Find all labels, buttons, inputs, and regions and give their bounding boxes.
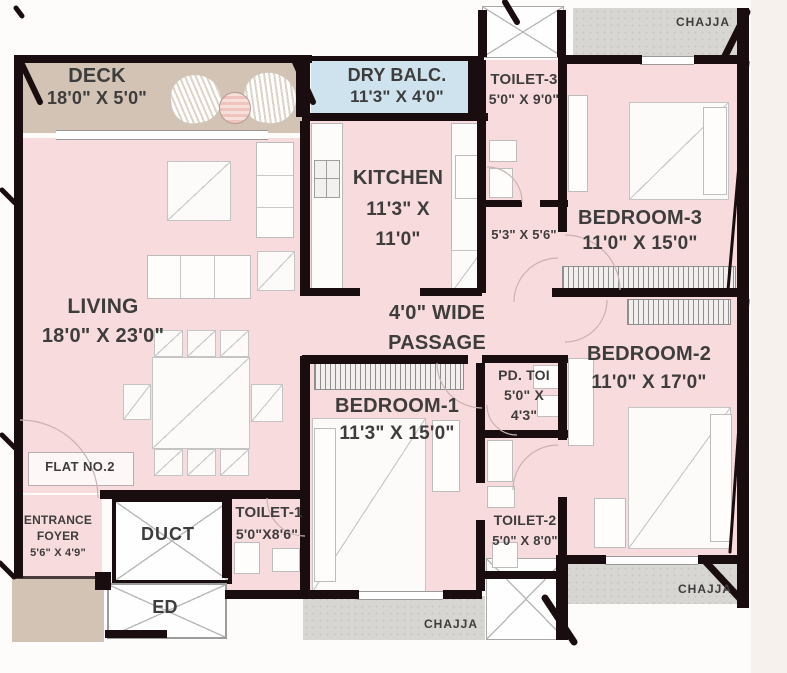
bedroom1-wardrobe: [314, 362, 464, 390]
living-center-table: [167, 161, 231, 221]
wall: [225, 590, 303, 599]
wall: [556, 555, 568, 640]
flat-number-label: FLAT NO.2: [30, 460, 130, 474]
wall: [105, 630, 167, 638]
toilet2-label: TOILET-2: [486, 513, 564, 528]
dress-size: 5'3" X 5'6": [484, 228, 564, 242]
wall: [443, 590, 482, 599]
wall: [302, 288, 360, 296]
page-margin: [751, 0, 787, 673]
dining-chair: [220, 449, 249, 476]
toilet3-size: 5'0" X 9'0": [481, 92, 567, 107]
wall: [300, 121, 310, 296]
toilet3-basin: [489, 140, 517, 162]
toilet3-label: TOILET-3: [484, 72, 564, 88]
wall: [468, 56, 484, 116]
bedroom2-label: BEDROOM-2: [574, 344, 724, 365]
dining-chair: [187, 330, 216, 357]
floor-plan: DECK 18'0" X 5'0" DRY BALC. 11'3" X 4'0"…: [0, 0, 787, 673]
wall: [558, 363, 567, 440]
dining-chair: [220, 330, 249, 357]
deck-bottom-left: [12, 578, 104, 642]
living-size: 18'0" X 23'0": [28, 326, 178, 347]
toilet1-basin: [272, 548, 300, 572]
kitchen-size-line1: 11'3" X: [346, 200, 450, 220]
bedroom2-window: [605, 556, 698, 565]
wall: [302, 355, 468, 364]
shaft-above-toilet3: [482, 6, 564, 58]
bedroom2-size: 11'0" X 17'0": [570, 373, 728, 393]
wall: [478, 10, 487, 57]
bedroom3-size: 11'0" X 15'0": [570, 234, 710, 254]
wall: [302, 113, 488, 121]
living-cabinet: [256, 142, 294, 238]
wall: [95, 572, 111, 590]
bedroom1-headboard: [314, 428, 336, 582]
kitchen-sink: [455, 155, 479, 199]
bedroom3-window: [640, 56, 694, 65]
dining-chair: [251, 384, 283, 422]
toilet3-wc: [489, 168, 513, 198]
bedroom1-size: 11'3" X 15'0": [317, 424, 477, 444]
wall: [557, 10, 566, 57]
bedroom2-wardrobe: [627, 299, 731, 325]
wall: [14, 55, 312, 63]
entrance-foyer-label-line1: ENTRANCE: [18, 514, 98, 527]
wall: [300, 356, 310, 599]
wall: [311, 56, 483, 61]
dining-chair: [123, 384, 151, 420]
deck-label: DECK: [37, 66, 157, 87]
bedroom3-wardrobe-side: [568, 95, 588, 192]
chajja-top-label: CHAJJA: [666, 16, 740, 29]
bedroom2-bench: [594, 498, 626, 548]
pd-toilet-size-line1: 5'0" X: [496, 388, 552, 403]
living-label: LIVING: [48, 296, 158, 318]
passage-label-line1: 4'0" WIDE: [358, 303, 516, 324]
wall: [552, 288, 748, 297]
living-sofa: [147, 255, 251, 299]
pd-toilet-size-line2: 4'3": [498, 408, 550, 423]
kitchen-size-line2: 11'0": [346, 230, 450, 250]
living-side-table: [257, 251, 295, 291]
wall: [737, 8, 749, 608]
plant-pot-icon: [219, 92, 251, 124]
wall: [100, 490, 308, 499]
dining-chair: [187, 449, 216, 476]
wall: [476, 363, 485, 483]
wall: [296, 55, 310, 117]
dining-chair: [154, 449, 183, 476]
wall: [482, 200, 522, 207]
pd-toilet-label: PD. TOI: [492, 368, 556, 383]
toilet2-basin: [487, 486, 515, 508]
bedroom1-window: [357, 591, 443, 600]
living-deck-window: [56, 130, 268, 140]
bedroom3-label: BEDROOM-3: [570, 208, 710, 229]
wall: [14, 55, 23, 578]
dry-balcony-label: DRY BALC.: [327, 66, 467, 85]
chajja-bottom-right-label: CHAJJA: [668, 583, 742, 596]
passage-label-line2: PASSAGE: [358, 333, 516, 354]
bedroom2-headboard: [710, 414, 732, 542]
toilet1-wc: [234, 542, 260, 574]
bedroom1-label: BEDROOM-1: [322, 396, 472, 417]
dry-balcony-size: 11'3" X 4'0": [322, 88, 472, 106]
wall: [558, 55, 642, 64]
toilet1-label: TOILET-1: [230, 505, 308, 521]
bedroom3-wardrobe: [562, 266, 736, 290]
entrance-foyer-size: 5'6" X 4'9": [16, 548, 100, 560]
duct-label: DUCT: [122, 525, 214, 544]
wall: [420, 288, 482, 296]
kitchen-counter-left: [311, 123, 343, 293]
bedroom2-dresser: [568, 358, 594, 446]
wall: [14, 576, 104, 579]
wall: [303, 590, 359, 599]
kitchen-label: KITCHEN: [346, 168, 450, 189]
ed-label: ED: [132, 598, 198, 617]
wall: [482, 355, 568, 363]
entrance-foyer-label-line2: FOYER: [18, 530, 98, 543]
toilet2-size: 5'0" X 8'0": [482, 534, 568, 548]
toilet2-shower: [487, 440, 513, 482]
deck-size: 18'0" X 5'0": [27, 89, 167, 108]
toilet1-size: 5'0"X8'6": [226, 527, 308, 542]
bedroom3-headboard: [703, 107, 727, 195]
wall: [476, 520, 485, 591]
kitchen-hob: [314, 160, 340, 198]
dining-table: [152, 357, 250, 449]
wall: [482, 430, 568, 438]
chajja-bottom-middle-label: CHAJJA: [414, 618, 488, 631]
